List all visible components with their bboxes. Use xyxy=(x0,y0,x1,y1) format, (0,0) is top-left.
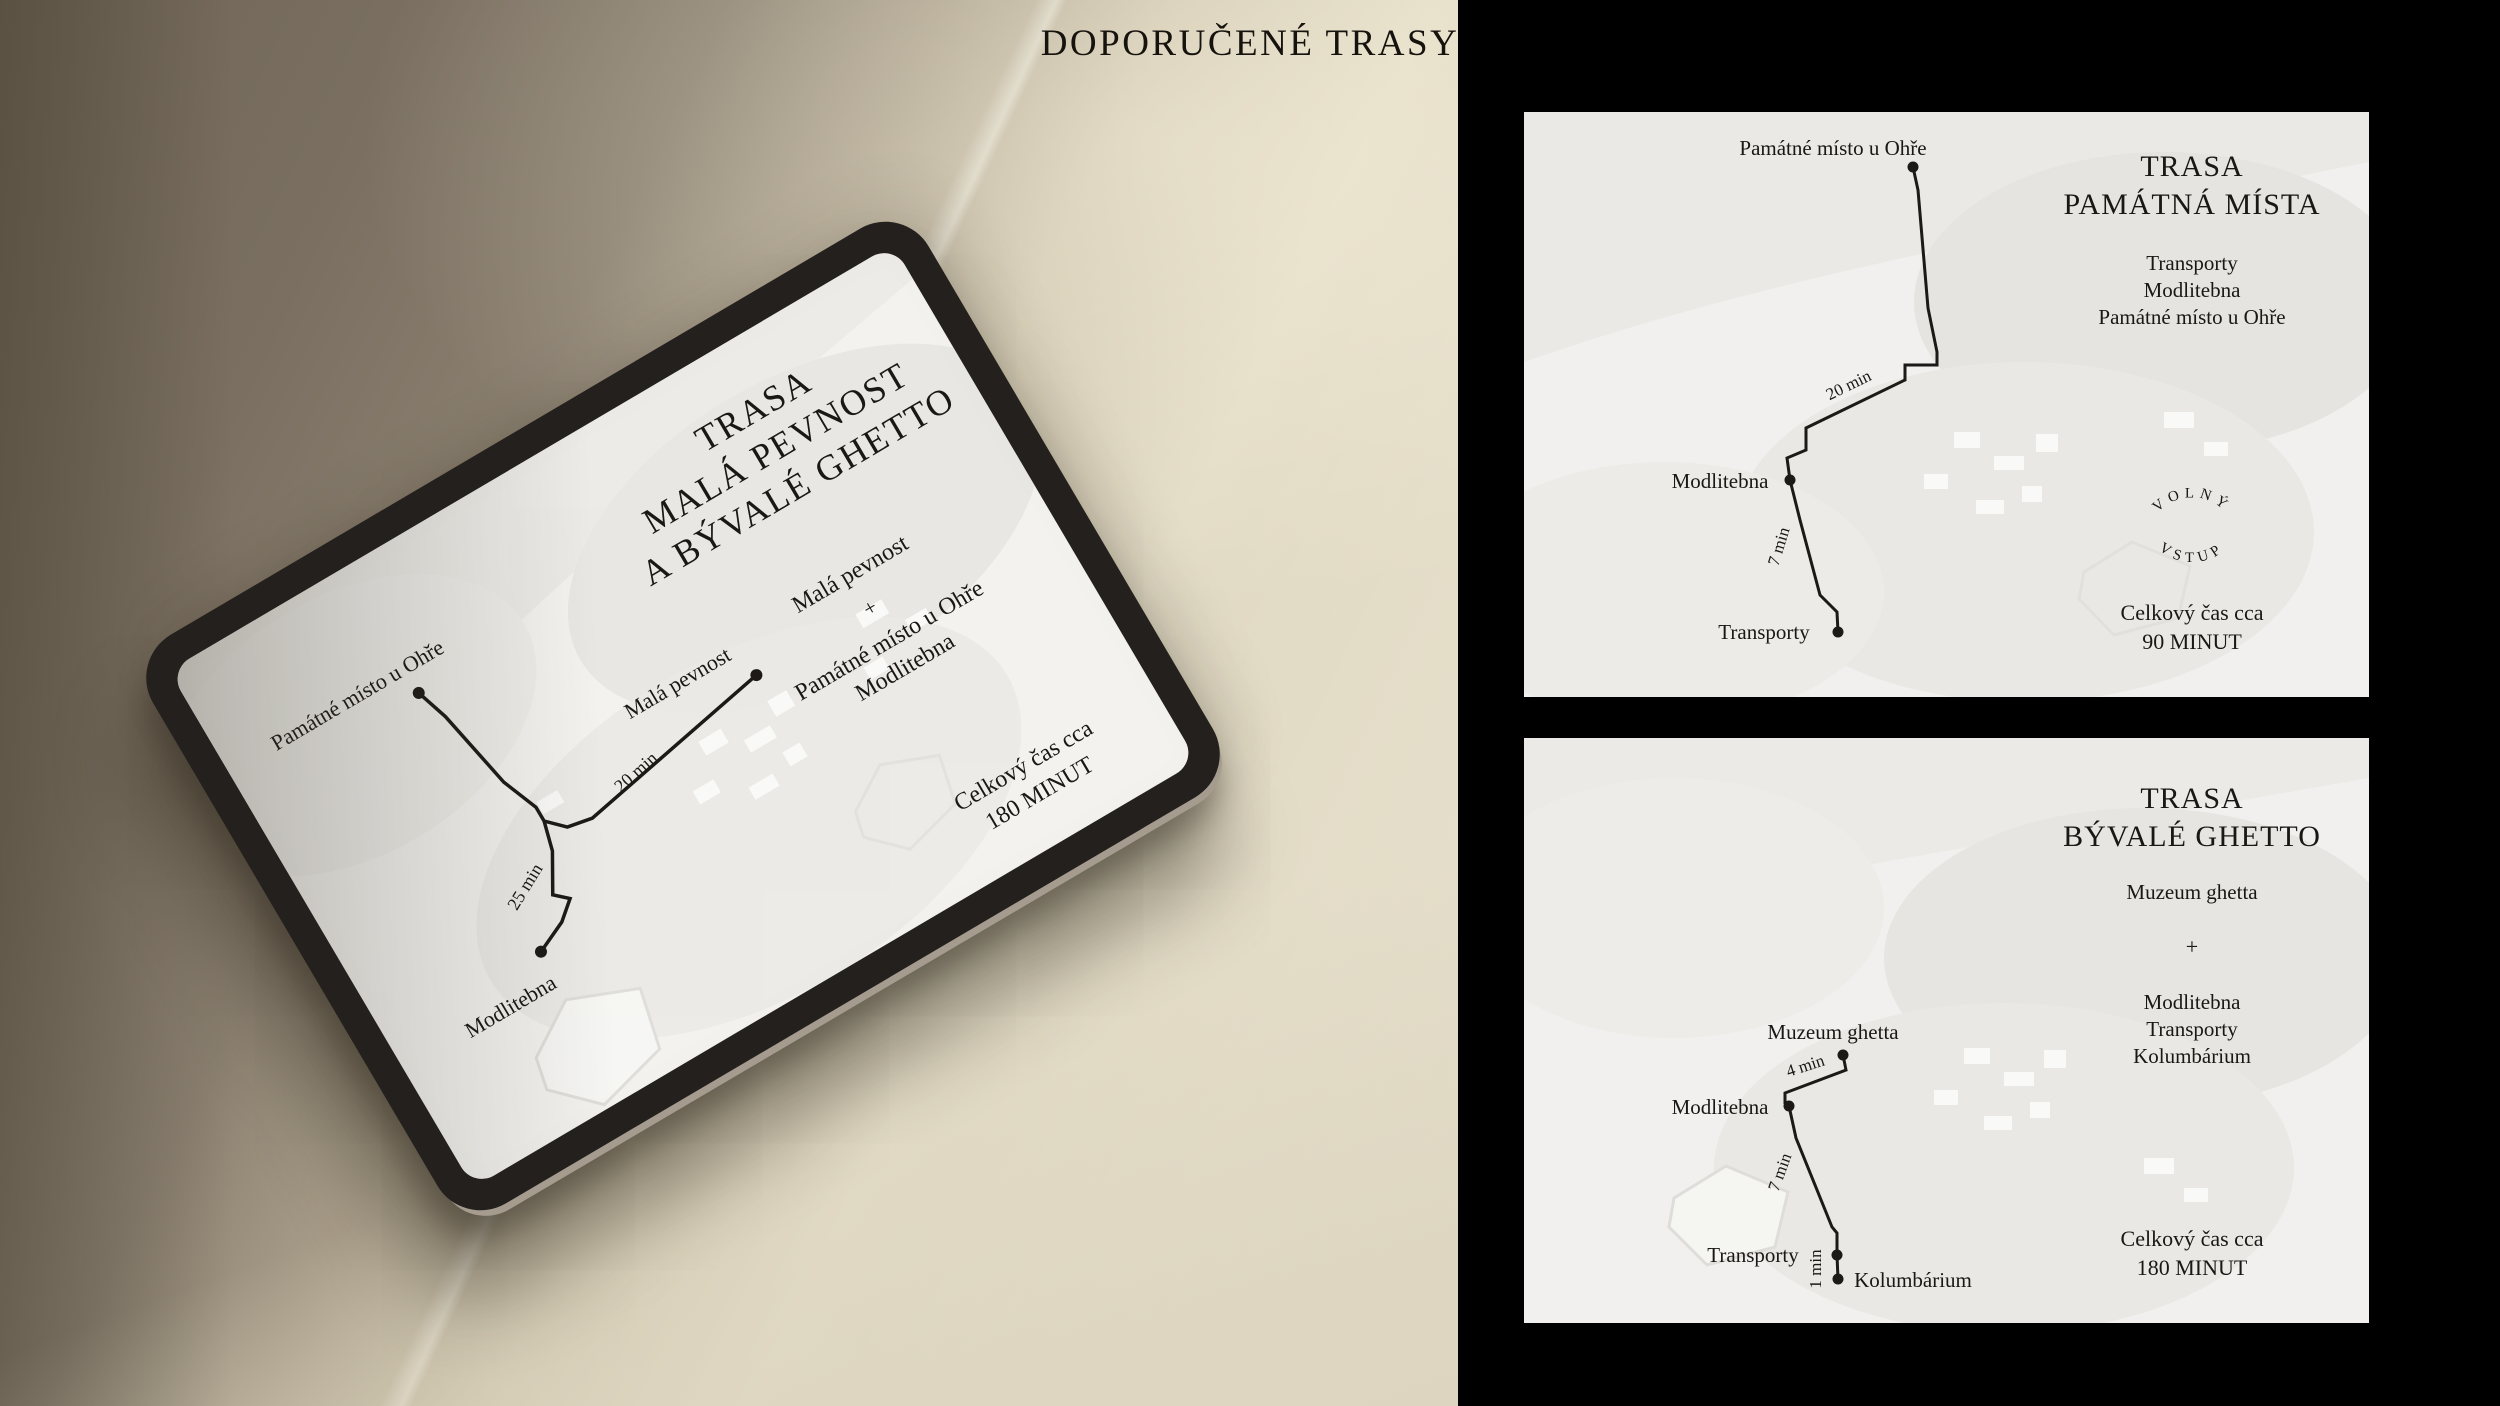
card-total-time: Celkový čas cca 180 MINUT xyxy=(2121,1224,2264,1282)
stop-list-item: Modlitebna xyxy=(2098,277,2285,304)
route-stop-label-transporty: Transporty xyxy=(1718,620,1810,644)
route-card-byvale-ghetto: Muzeum ghetta Modlitebna Transporty Kolu… xyxy=(1524,738,2369,1323)
duration-label-1min: 1 min xyxy=(1806,1249,1825,1289)
svg-text:VOLNÝ: VOLNÝ xyxy=(2150,485,2235,515)
route-line xyxy=(419,541,777,862)
svg-text:VSTUP: VSTUP xyxy=(2156,540,2227,566)
route-stop-label-modlitebna: Modlitebna xyxy=(460,970,560,1043)
title-line: PAMÁTNÁ MÍSTA xyxy=(2063,186,2320,224)
card-title: TRASA BÝVALÉ GHETTO xyxy=(2063,780,2321,856)
title-line: TRASA xyxy=(2063,780,2321,818)
photo-scene: DOPORUČENÉ TRASY xyxy=(0,0,1458,1406)
route-stop-label-mala: Malá pevnost xyxy=(620,642,735,724)
card-stop-list: Transporty Modlitebna Památné místo u Oh… xyxy=(2098,250,2285,331)
route-stop-dot xyxy=(1785,475,1796,486)
total-time-label: Celkový čas cca xyxy=(2121,1224,2264,1253)
duration-label-20min: 20 min xyxy=(610,748,661,796)
stop-list-item: Památné místo u Ohře xyxy=(2098,304,2285,331)
total-time-value: 180 MINUT xyxy=(2121,1253,2264,1282)
plus-sign: + xyxy=(2186,934,2198,960)
free-entry-badge: VOLNÝ VSTUP xyxy=(2132,468,2252,588)
card-title: TRASA PAMÁTNÁ MÍSTA xyxy=(2063,148,2320,224)
route-card-pamatna-mista: Památné místo u Ohře Modlitebna Transpor… xyxy=(1524,112,2369,697)
route-stop-dot xyxy=(1833,1274,1844,1285)
duration-label-7min: 7 min xyxy=(1764,524,1794,568)
title-line: TRASA xyxy=(2063,148,2320,186)
tablet-route-map: Památné místo u Ohře Malá pevnost Modlit… xyxy=(169,244,1197,1187)
duration-label-25min: 25 min xyxy=(503,860,546,914)
tablet-device: Památné místo u Ohře Malá pevnost Modlit… xyxy=(128,203,1238,1228)
routes-panel: Památné místo u Ohře Modlitebna Transpor… xyxy=(1458,0,2500,1406)
route-stop-dot xyxy=(1833,627,1844,638)
route-stop-label-modlitebna: Modlitebna xyxy=(1672,1095,1769,1119)
card-stop-list: Modlitebna Transporty Kolumbárium xyxy=(2133,989,2251,1070)
tablet-screen: Památné místo u Ohře Malá pevnost Modlit… xyxy=(169,244,1197,1187)
featured-stop: Muzeum ghetta xyxy=(2126,880,2257,905)
route-line xyxy=(1787,167,1937,632)
route-line xyxy=(485,821,601,952)
stop-list-item: Kolumbárium xyxy=(2133,1043,2251,1070)
title-line: BÝVALÉ GHETTO xyxy=(2063,818,2321,856)
total-time-label: Celkový čas cca xyxy=(2121,598,2264,627)
design-mockup: DOPORUČENÉ TRASY xyxy=(0,0,2500,1406)
route-stop-label-kolumbarium: Kolumbárium xyxy=(1854,1268,1972,1292)
page-title: DOPORUČENÉ TRASY xyxy=(1041,22,1458,65)
stop-list-item: Transporty xyxy=(2133,1016,2251,1043)
route-stop-label-transporty: Transporty xyxy=(1707,1243,1799,1267)
card-total-time: Celkový čas cca 90 MINUT xyxy=(2121,598,2264,656)
route-stop-label-pamatne: Památné místo u Ohře xyxy=(1739,136,1926,160)
route-stop-label-modlitebna: Modlitebna xyxy=(1672,469,1769,493)
stop-list-item: Transporty xyxy=(2098,250,2285,277)
route-stop-label-muzeum: Muzeum ghetta xyxy=(1767,1020,1899,1044)
badge-text-bottom: VSTUP xyxy=(2156,540,2227,566)
route-stop-dot xyxy=(1908,162,1919,173)
badge-text-top: VOLNÝ xyxy=(2150,485,2235,515)
duration-label-7min: 7 min xyxy=(1764,1150,1795,1194)
route-stop-dot xyxy=(1838,1050,1849,1061)
duration-label-4min: 4 min xyxy=(1784,1051,1828,1081)
route-stop-dot xyxy=(1832,1250,1843,1261)
stop-list-item: Modlitebna xyxy=(2133,989,2251,1016)
total-time-value: 90 MINUT xyxy=(2121,627,2264,656)
route-stop-dot xyxy=(1784,1101,1795,1112)
